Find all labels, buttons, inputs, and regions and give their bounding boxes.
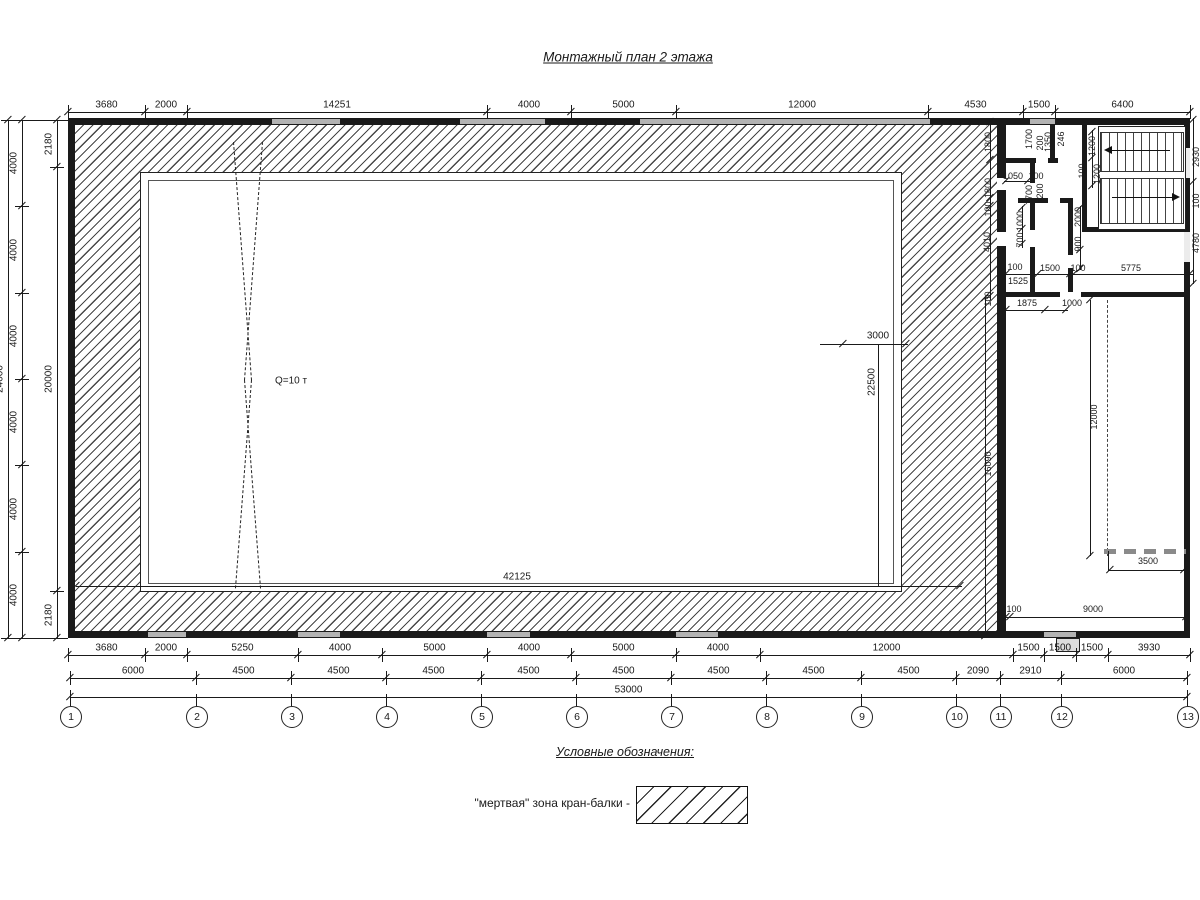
dim-label: 4000 (518, 643, 540, 654)
dim-label: 4000 (9, 238, 20, 260)
dim-line (1004, 310, 1068, 311)
dim-line (1187, 671, 1188, 685)
dim-label: 4000 (518, 100, 540, 111)
dim-line (878, 344, 879, 586)
dim-label: 4500 (802, 666, 824, 677)
dim-line (1004, 181, 1034, 182)
dim-label: 2000 (1073, 207, 1083, 227)
dim-line (576, 671, 577, 685)
dim-label: 3930 (1138, 643, 1160, 654)
dim-label: 100 (983, 201, 993, 216)
dim-label: 4500 (422, 666, 444, 677)
axis-bubble: 4 (376, 706, 398, 728)
dim-line (1061, 694, 1062, 706)
dim-label: 1500 (1017, 643, 1039, 654)
dim-label: 4500 (517, 666, 539, 677)
dim-label: 16090 (983, 451, 993, 476)
dim-line (676, 648, 677, 662)
axis-bubble: 8 (756, 706, 778, 728)
dim-label: 100 (1006, 604, 1021, 614)
dim-line (1061, 671, 1062, 685)
dim-line (1190, 105, 1191, 119)
dim-label: 9000 (1083, 604, 1103, 614)
dim-line (68, 105, 69, 119)
dim-label: 2090 (967, 666, 989, 677)
dim-line (1000, 671, 1001, 685)
dim-label: 700 (1015, 232, 1025, 247)
dim-label: 2180 (44, 603, 55, 625)
dim-line (145, 648, 146, 662)
dim-line (145, 105, 146, 119)
dim-label: 12000 (1089, 404, 1099, 429)
dim-label: 4010 (982, 232, 992, 252)
dim-line (15, 293, 29, 294)
dim-line (70, 694, 71, 706)
wall-panel-joint (676, 632, 718, 637)
dim-label: 4500 (232, 666, 254, 677)
dim-label: 4500 (897, 666, 919, 677)
dim-label: 3680 (95, 643, 117, 654)
dim-label: 1500 (1081, 643, 1103, 654)
dim-label: 4000 (9, 584, 20, 606)
dim-line (766, 694, 767, 706)
dim-line (50, 591, 64, 592)
dim-label: 14251 (323, 100, 351, 111)
dim-line (70, 678, 1187, 679)
dim-line (861, 694, 862, 706)
dim-label: 1500 (1028, 100, 1050, 111)
dim-line (70, 671, 71, 685)
dim-line (68, 648, 69, 662)
floor-plan-drawing: Монтажный план 2 этажа Условные обозначе… (0, 0, 1200, 900)
wall (997, 118, 1006, 638)
dim-label: 3500 (1138, 556, 1158, 566)
dim-line (1000, 694, 1001, 706)
dim-label: 1875 (1017, 298, 1037, 308)
dim-label: 1200 (1087, 136, 1097, 156)
dim-label: 100 (1007, 262, 1022, 272)
dim-line (481, 694, 482, 706)
dim-label: 900 (1073, 236, 1083, 251)
dim-label: 1050 (1003, 171, 1023, 181)
dim-label: 3680 (95, 100, 117, 111)
wall (1003, 631, 1190, 638)
dim-label: 100 (1191, 193, 1200, 208)
dim-line (1108, 570, 1186, 571)
dim-label: 6000 (122, 666, 144, 677)
dim-line (70, 697, 1187, 698)
door-opening (997, 232, 1006, 246)
dim-label: 22500 (867, 368, 878, 396)
dim-label: 42125 (503, 572, 531, 583)
wall-panel-joint (460, 119, 545, 124)
dim-label: 12000 (788, 100, 816, 111)
dim-line (571, 648, 572, 662)
dim-label: 100 (983, 291, 993, 306)
dead-zone-dashed-line (1107, 300, 1108, 556)
dim-line (382, 648, 383, 662)
dim-line (760, 648, 761, 662)
dim-label: 1000 (1015, 211, 1025, 231)
dim-line (196, 671, 197, 685)
legend-heading: Условные обозначения: (556, 745, 694, 759)
dim-label: 5000 (423, 643, 445, 654)
wall-panel-joint (148, 632, 186, 637)
axis-bubble: 1 (60, 706, 82, 728)
wall (1030, 247, 1035, 292)
dim-label: 1800 (983, 132, 993, 152)
dim-label: 2180 (44, 132, 55, 154)
dim-line (1004, 617, 1188, 618)
dim-line (15, 206, 29, 207)
wall-panel-joint (298, 632, 340, 637)
dim-label: 5775 (1121, 263, 1141, 273)
dim-line (298, 648, 299, 662)
wall-panel-joint (1044, 632, 1076, 637)
dim-label: 12000 (873, 643, 901, 654)
dim-label: 2910 (1019, 666, 1041, 677)
dim-label: 5000 (612, 100, 634, 111)
dim-label: 6000 (1113, 666, 1135, 677)
dim-line (1108, 150, 1170, 151)
dim-label: 4000 (329, 643, 351, 654)
dim-line (487, 648, 488, 662)
dim-label: 53000 (615, 685, 643, 696)
dim-label: 1525 (1008, 276, 1028, 286)
dim-line (481, 671, 482, 685)
axis-bubble: 13 (1177, 706, 1199, 728)
dim-line (1044, 648, 1045, 662)
dim-label: 4500 (707, 666, 729, 677)
dim-line (1023, 105, 1024, 119)
dim-line (291, 694, 292, 706)
dim-line (57, 120, 58, 638)
dim-line (766, 671, 767, 685)
dim-label: 4530 (964, 100, 986, 111)
dim-label: 4000 (9, 497, 20, 519)
dim-line (671, 694, 672, 706)
dim-line (487, 105, 488, 119)
axis-bubble: 9 (851, 706, 873, 728)
dim-line (196, 694, 197, 706)
dim-line (1055, 105, 1056, 119)
axis-bubble: 5 (471, 706, 493, 728)
crane-coverage-inner-line (148, 180, 894, 584)
dim-line (1108, 648, 1109, 662)
dim-label: 4000 (9, 325, 20, 347)
dim-line (15, 465, 29, 466)
dim-label: 24000 (0, 365, 6, 393)
crane-capacity-label: Q=10 т (275, 376, 307, 387)
wall-panel-joint (640, 119, 930, 124)
dead-zone-dashed-edge (1104, 549, 1186, 554)
dim-label: 1700 (1024, 129, 1034, 149)
dim-line (15, 379, 29, 380)
dim-label: 2930 (1191, 147, 1200, 167)
wall-panel-joint (487, 632, 530, 637)
dim-line (187, 105, 188, 119)
dim-line (2, 120, 68, 121)
dim-line (187, 648, 188, 662)
dim-line (676, 105, 677, 119)
dim-tick (1189, 280, 1197, 288)
legend-hatch-swatch (636, 786, 748, 824)
dim-label: 100 (1070, 263, 1085, 273)
dim-line (68, 655, 1190, 656)
dim-label: 4780 (1191, 233, 1200, 253)
dim-line (571, 105, 572, 119)
dim-line (291, 671, 292, 685)
stair-flight (1100, 132, 1184, 172)
dim-label: 6400 (1111, 100, 1133, 111)
dim-line (1187, 694, 1188, 706)
dim-line (1013, 648, 1014, 662)
stair-arrow (1172, 193, 1180, 201)
dim-label: 4500 (327, 666, 349, 677)
wall (1081, 292, 1184, 297)
dim-line (576, 694, 577, 706)
axis-bubble: 6 (566, 706, 588, 728)
dim-line (820, 344, 908, 345)
dim-label: 20000 (44, 365, 55, 393)
dim-line (1108, 551, 1109, 570)
dim-line (386, 671, 387, 685)
dim-label: 1000 (1062, 298, 1082, 308)
axis-bubble: 11 (990, 706, 1012, 728)
dim-line (1112, 197, 1174, 198)
drawing-title: Монтажный план 2 этажа (543, 50, 713, 65)
dim-line (1004, 274, 1194, 275)
stair-flight (1100, 178, 1184, 224)
legend-item-label: "мертвая" зона кран-балки - (474, 796, 630, 810)
dim-line (76, 586, 962, 587)
dim-label: 1800 (983, 178, 993, 198)
dim-tick (1086, 552, 1094, 560)
dim-line (1190, 648, 1191, 662)
dim-label: 4000 (707, 643, 729, 654)
wall (68, 631, 1003, 638)
stair-arrow (1104, 146, 1112, 154)
dim-line (861, 671, 862, 685)
wall-panel-joint (1030, 119, 1055, 124)
window-opening (1184, 232, 1190, 262)
dim-label: 2000 (155, 100, 177, 111)
axis-bubble: 12 (1051, 706, 1073, 728)
dim-line (671, 671, 672, 685)
dim-label: 200 (1035, 183, 1045, 198)
dim-line (386, 694, 387, 706)
dim-label: 1500 (1049, 643, 1071, 654)
dim-line (15, 552, 29, 553)
dim-label: 2000 (155, 643, 177, 654)
dim-line (1076, 648, 1077, 662)
axis-bubble: 7 (661, 706, 683, 728)
axis-bubble: 3 (281, 706, 303, 728)
dim-label: 5000 (612, 643, 634, 654)
dim-label: 100 (1077, 163, 1087, 178)
dim-line (928, 105, 929, 119)
dim-label: 1500 (1040, 263, 1060, 273)
dim-label: 3000 (867, 331, 889, 342)
dim-line (956, 694, 957, 706)
dim-label: 4500 (612, 666, 634, 677)
dim-line (956, 671, 957, 685)
dim-label: 1700 (1024, 185, 1034, 205)
wall (1003, 292, 1060, 297)
dim-label: 1350 (1043, 132, 1053, 152)
axis-bubble: 10 (946, 706, 968, 728)
dim-label: 1200 (1092, 164, 1102, 184)
dim-label: 246 (1056, 131, 1066, 146)
wall (68, 118, 75, 638)
dim-line (2, 638, 68, 639)
wall-panel-joint (272, 119, 340, 124)
axis-bubble: 2 (186, 706, 208, 728)
dim-label: 5250 (231, 643, 253, 654)
dim-line (50, 167, 64, 168)
dim-label: 100 (1028, 171, 1043, 181)
dim-label: 4000 (9, 152, 20, 174)
dim-line (8, 120, 9, 638)
dim-label: 4000 (9, 411, 20, 433)
